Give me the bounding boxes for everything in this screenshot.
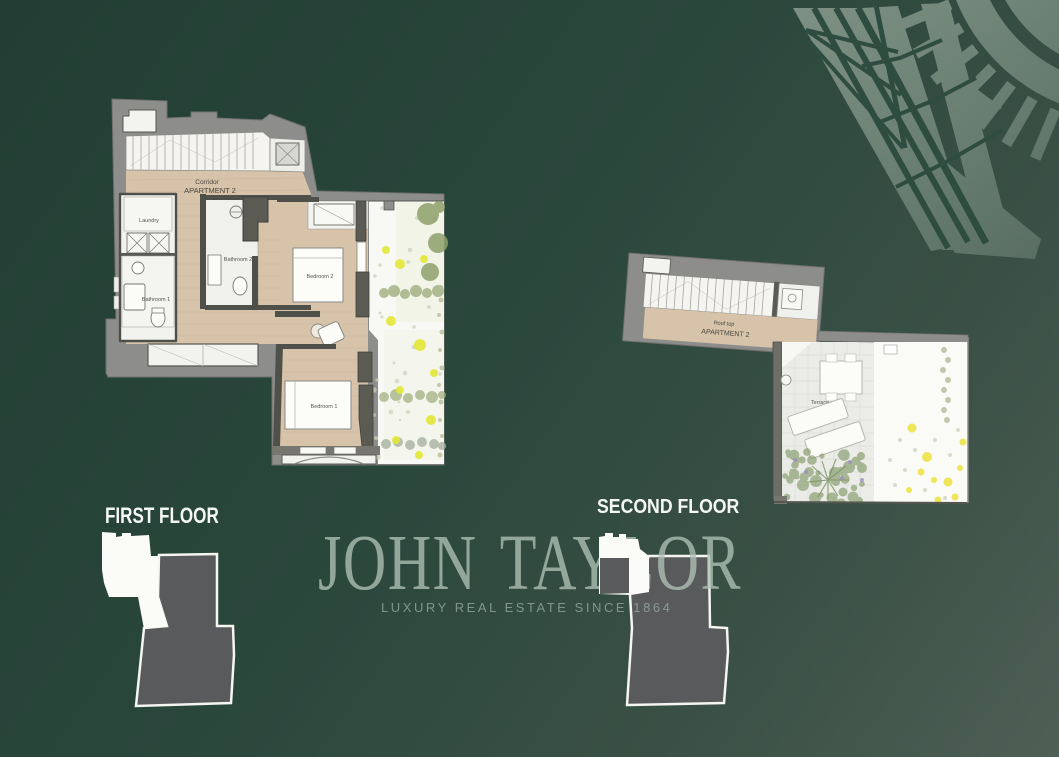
svg-text:Corridor: Corridor — [195, 179, 219, 186]
svg-text:Bedroom 2: Bedroom 2 — [307, 274, 334, 280]
svg-text:JOHN TAYLOR: JOHN TAYLOR — [318, 519, 742, 607]
svg-text:LUXURY REAL ESTATE SINCE 1864: LUXURY REAL ESTATE SINCE 1864 — [381, 600, 672, 615]
svg-text:APARTMENT 2: APARTMENT 2 — [184, 186, 236, 195]
svg-text:Laundry: Laundry — [139, 218, 159, 224]
svg-text:Bedroom 1: Bedroom 1 — [311, 404, 338, 410]
svg-text:Bathroom 2: Bathroom 2 — [224, 257, 252, 263]
svg-text:Bathroom 1: Bathroom 1 — [142, 297, 170, 303]
svg-text:FIRST FLOOR: FIRST FLOOR — [105, 504, 219, 529]
svg-text:SECOND FLOOR: SECOND FLOOR — [597, 495, 740, 517]
